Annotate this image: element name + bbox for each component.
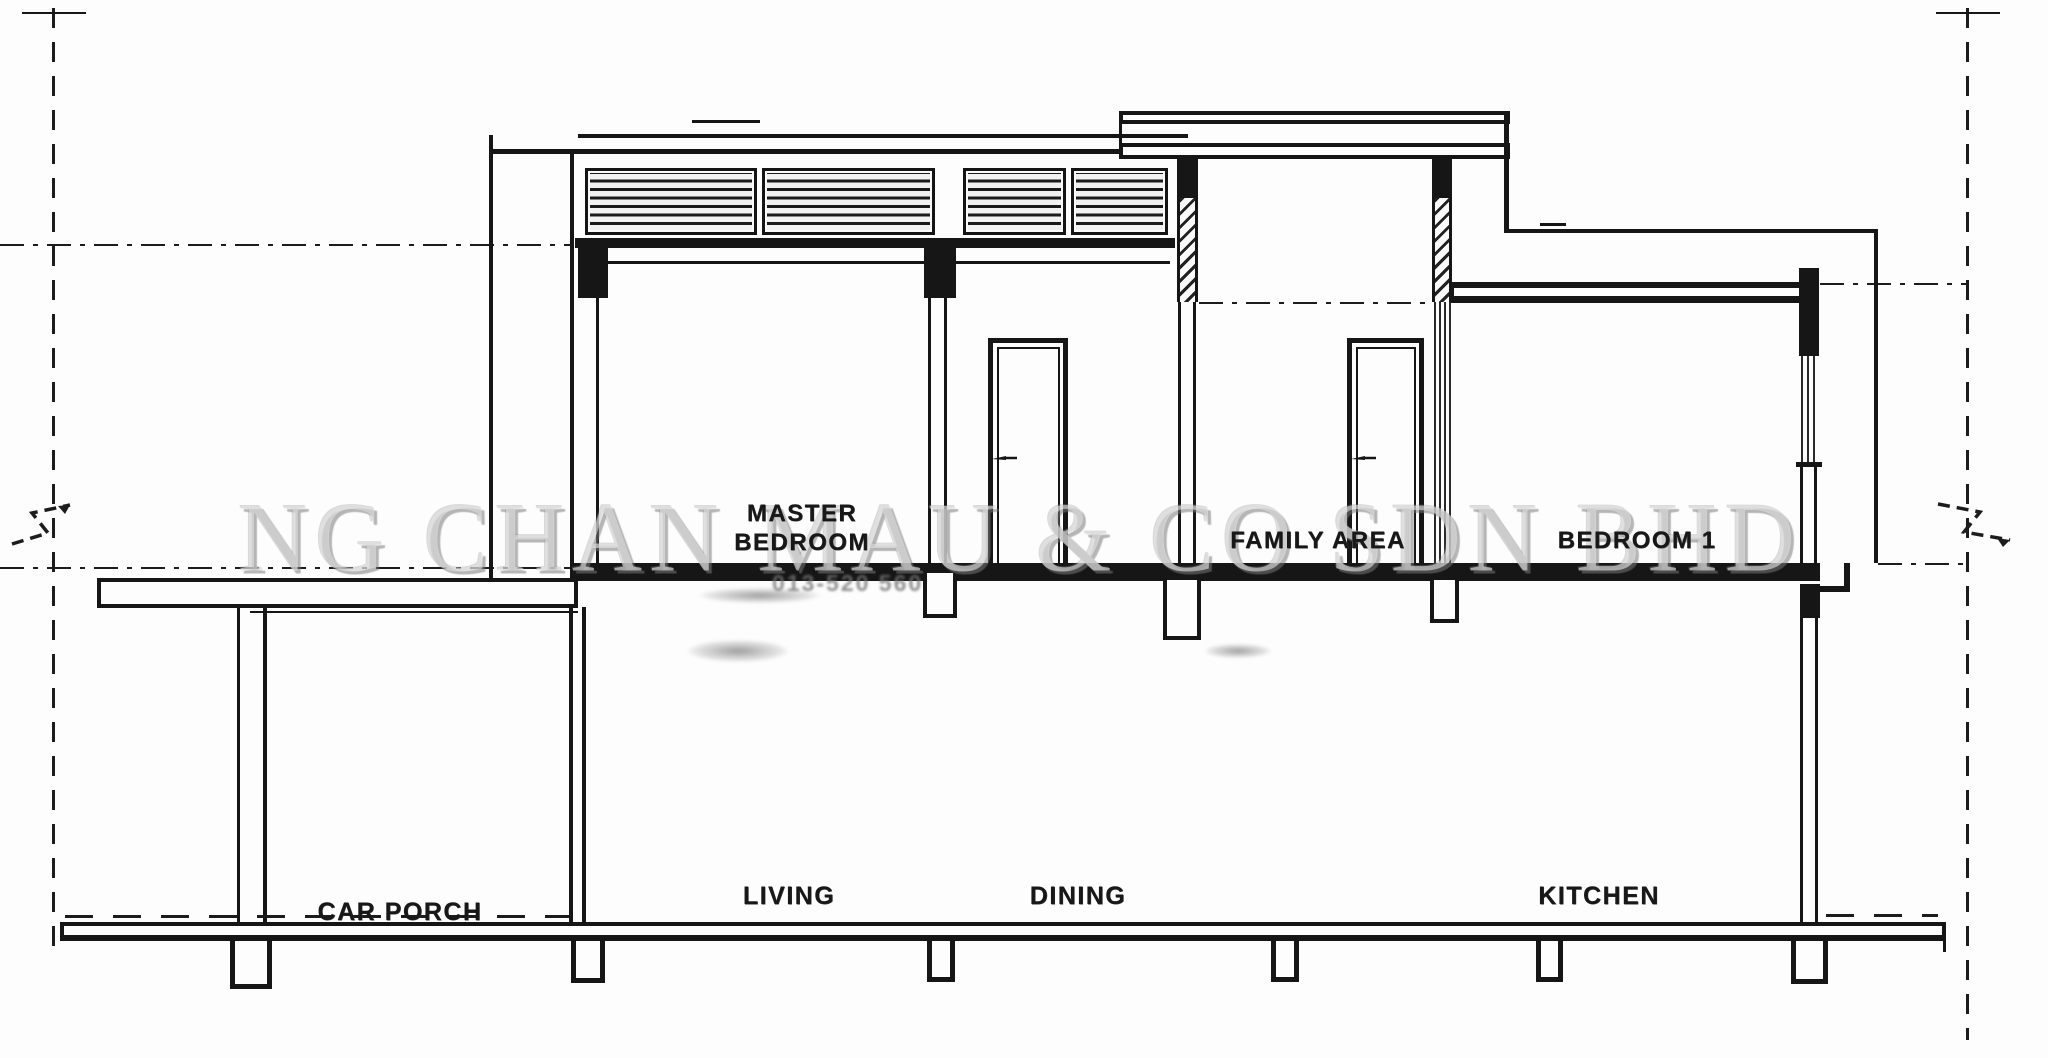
datum-line-ceiling-family bbox=[1199, 302, 1433, 304]
roof-slab-top-line bbox=[578, 134, 1188, 138]
break-mark-left-icon bbox=[8, 500, 104, 552]
right-wall-line-b bbox=[1814, 467, 1817, 563]
footing-kitchen bbox=[1536, 941, 1563, 982]
bedroom1-ceiling-left-step bbox=[1449, 282, 1454, 303]
ground-wall-right-inner bbox=[1800, 592, 1803, 924]
raised-roof-right-edge bbox=[1504, 111, 1509, 233]
right-window-glazing-1 bbox=[1801, 356, 1803, 463]
ground-wall-left-outer bbox=[569, 607, 573, 924]
label-dining: DINING bbox=[1030, 882, 1127, 911]
watermark-smudge-1 bbox=[688, 640, 788, 662]
ground-wall-left-inner bbox=[582, 607, 586, 924]
label-master-bedroom-line2: BEDROOM bbox=[734, 529, 870, 557]
upper-wall-mid-beam bbox=[924, 240, 956, 298]
label-living: LIVING bbox=[743, 882, 835, 911]
master-door-handle-icon bbox=[990, 450, 1018, 466]
raised-roof-parapet bbox=[1119, 111, 1510, 124]
car-porch-slab-soffit-line bbox=[250, 611, 578, 613]
roof-cap-segment-a bbox=[692, 120, 760, 123]
louver-panel-3 bbox=[963, 168, 1066, 235]
upper-wall-left-beam bbox=[578, 240, 608, 298]
bedroom1-roof-overlap-dash bbox=[1540, 223, 1566, 226]
roof-pier-right-cap bbox=[1432, 158, 1452, 198]
footing-right-wall bbox=[1791, 941, 1828, 984]
louver-sill-band bbox=[575, 238, 1175, 248]
label-kitchen: KITCHEN bbox=[1538, 882, 1660, 911]
watermark-smudge-3 bbox=[700, 588, 820, 603]
footing-living bbox=[927, 941, 955, 982]
label-car-porch: CAR PORCH bbox=[318, 898, 483, 927]
label-bedroom-1: BEDROOM 1 bbox=[1558, 527, 1717, 555]
right-window-glazing-2 bbox=[1807, 356, 1809, 463]
ground-wall-right-outer bbox=[1815, 592, 1818, 924]
louver-panel-2 bbox=[762, 168, 935, 235]
roof-fascia-right bbox=[1874, 231, 1878, 563]
datum-line-ceiling-left bbox=[0, 244, 572, 246]
right-window-glazing-3 bbox=[1813, 356, 1815, 463]
right-wall-beam bbox=[1799, 268, 1819, 356]
grid-tick-top-left bbox=[22, 12, 86, 14]
ground-slab-end-right bbox=[1943, 922, 1946, 952]
watermark-smudge-2 bbox=[1205, 644, 1271, 658]
bedroom1-ceiling-bottom-line bbox=[1449, 296, 1801, 303]
footing-dining bbox=[1271, 941, 1299, 982]
apron-dashed-line-right bbox=[1826, 914, 1938, 917]
slab-step-right-horizontal bbox=[1818, 586, 1850, 592]
datum-line-ceiling-right bbox=[1820, 283, 1968, 285]
bedroom1-ceiling-top-line bbox=[1449, 282, 1801, 288]
roof-pier-left-cap bbox=[1177, 158, 1198, 198]
section-drawing-sheet: NG CHAN MAU & CO SDN BHD 013-520 560 MAS… bbox=[0, 0, 2048, 1058]
datum-line-floor-right bbox=[1878, 563, 1968, 565]
grid-line-left bbox=[52, 8, 55, 946]
family-door-handle-icon bbox=[1349, 450, 1377, 466]
car-porch-column-left-line bbox=[237, 607, 240, 924]
footing-left-wall bbox=[571, 941, 605, 983]
upper-ceiling-line bbox=[585, 261, 1170, 264]
louver-panel-4 bbox=[1071, 168, 1168, 235]
roof-slab-bottom-line bbox=[489, 149, 1188, 154]
car-porch-column-right-line bbox=[263, 607, 267, 924]
louver-panel-1 bbox=[585, 168, 757, 235]
grid-tick-top-right bbox=[1936, 12, 2000, 14]
label-family-area: FAMILY AREA bbox=[1230, 527, 1406, 555]
bedroom1-roof-line bbox=[1508, 229, 1878, 233]
raised-roof-left-step bbox=[1119, 111, 1122, 153]
raised-roof-slab bbox=[1119, 143, 1510, 159]
label-master-bedroom-line1: MASTER bbox=[747, 500, 857, 528]
footing-car-porch-column bbox=[230, 941, 272, 989]
break-mark-right-icon bbox=[1928, 496, 2024, 548]
